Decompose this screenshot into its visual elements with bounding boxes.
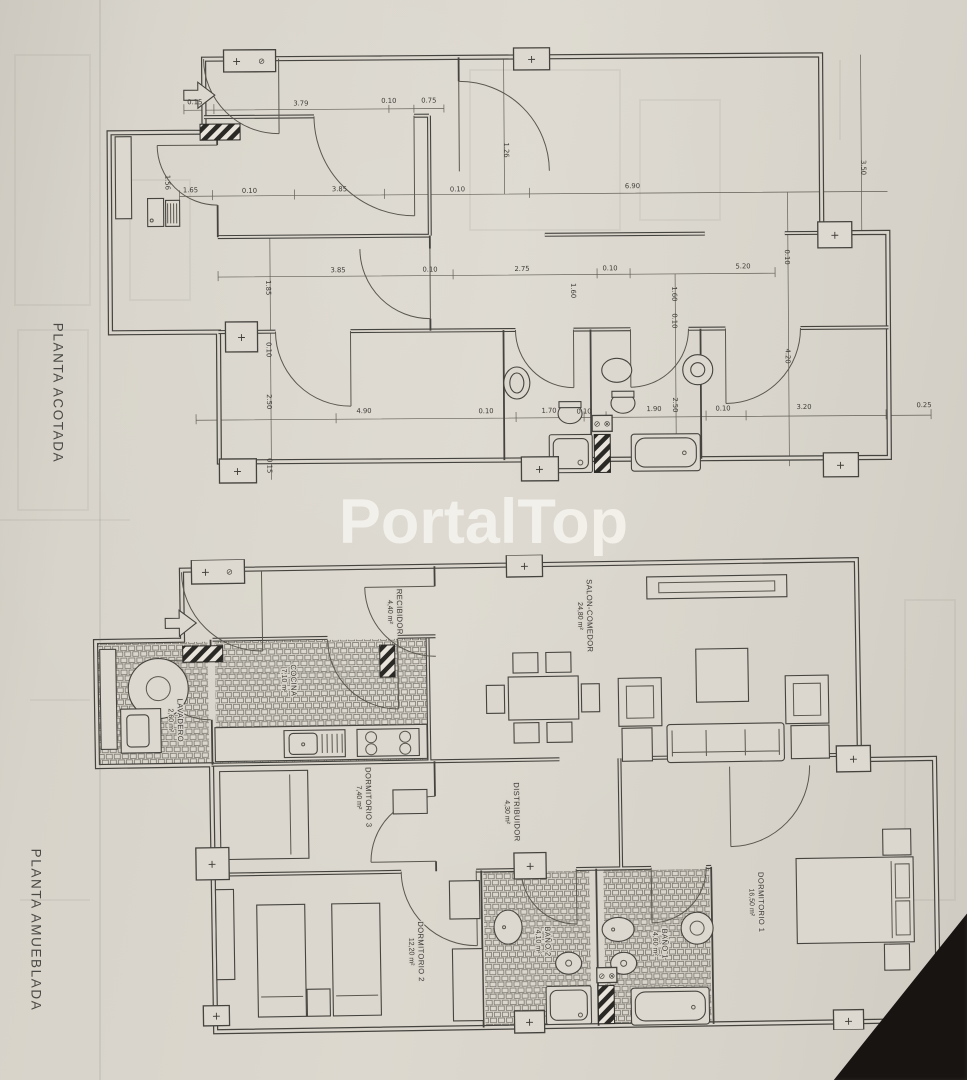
plan-amueblada-drawing: ⊘ ⊗ + ⊘ + + + + + + bbox=[86, 548, 943, 1041]
room-area: 4,60 m² bbox=[651, 932, 658, 957]
dim-label: 0.10 bbox=[478, 407, 493, 415]
dim-label: 0.75 bbox=[421, 97, 436, 105]
plus-marker: + bbox=[535, 463, 544, 476]
kitchen-furniture bbox=[215, 724, 428, 761]
plus-marker: + bbox=[520, 560, 529, 573]
room-name: DORMITORIO 1 bbox=[756, 872, 766, 932]
room-area: 4,10 m² bbox=[534, 930, 541, 955]
dim-label: 4.20 bbox=[784, 349, 792, 364]
room-area: 12,20 m² bbox=[407, 938, 414, 966]
shaft-symbol: ⊗ bbox=[608, 971, 615, 980]
dim-label: 0.25 bbox=[916, 401, 931, 409]
room-area: 16,50 m² bbox=[747, 888, 754, 916]
dim-label: 0.10 bbox=[422, 266, 437, 274]
plan-amueblada: ⊘ ⊗ + ⊘ + + + + + + bbox=[86, 548, 943, 1041]
dim-label: 0.10 bbox=[450, 185, 465, 193]
dim-label: 5.20 bbox=[735, 262, 750, 270]
dim-label: 1.90 bbox=[646, 405, 661, 413]
watermark: PortalTop bbox=[0, 486, 967, 558]
room-name: DORMITORIO 3 bbox=[364, 767, 374, 827]
plus-marker: + bbox=[237, 331, 246, 344]
plan-amueblada-side-label: PLANTA AMUEBLADA bbox=[29, 849, 44, 1012]
room-name: BAÑO 1 bbox=[660, 928, 669, 958]
dim-label: 1.70 bbox=[541, 407, 556, 415]
plus-marker: + bbox=[849, 753, 858, 766]
dim-label: 4.90 bbox=[356, 407, 371, 415]
dimension-labels-vertical: 1.26 1.56 3.50 1.85 0.10 1.60 1.60 0.10 … bbox=[163, 140, 869, 474]
bedroom1-furniture bbox=[796, 829, 915, 972]
plus-marker: + bbox=[844, 1015, 853, 1028]
plan-acotada-side-label: PLANTA ACOTADA bbox=[51, 323, 66, 463]
room-area: 4,40 m² bbox=[386, 600, 393, 625]
dim-label: 0.10 bbox=[576, 407, 591, 415]
room-area: 7,10 m² bbox=[280, 669, 287, 694]
plus-marker: + bbox=[525, 860, 534, 873]
dim-label: 2.50 bbox=[671, 397, 679, 412]
room-area: 24,80 m² bbox=[576, 602, 583, 630]
dim-label: 6.90 bbox=[625, 182, 640, 190]
dim-label: 3.85 bbox=[332, 185, 347, 193]
living-room-furniture bbox=[485, 574, 830, 765]
plus-marker: + bbox=[212, 1010, 221, 1023]
dim-label: 1.60 bbox=[670, 286, 678, 301]
diameter-marker: ⊘ bbox=[226, 567, 233, 576]
dim-label: 1.26 bbox=[502, 142, 510, 157]
paper-crease bbox=[99, 0, 101, 1080]
diameter-marker: ⊘ bbox=[258, 57, 265, 66]
dim-label: 3.79 bbox=[293, 99, 308, 107]
entry-arrow-icon bbox=[165, 610, 196, 636]
plan-acotada: ⊘ ⊗ + ⊘ + + + + + + bbox=[83, 35, 946, 491]
dim-label: 2.50 bbox=[265, 394, 273, 409]
plus-marker: + bbox=[830, 229, 839, 242]
dim-label: 0.15 bbox=[265, 458, 273, 473]
dim-label: 0.10 bbox=[381, 97, 396, 105]
dim-label: 0.10 bbox=[715, 404, 730, 412]
room-area: 7,40 m² bbox=[355, 786, 362, 811]
room-name: LAVADERO bbox=[175, 698, 185, 742]
room-area: 2,60 m² bbox=[167, 708, 174, 733]
dim-label: 0.10 bbox=[602, 264, 617, 272]
dim-label: 3.50 bbox=[859, 160, 867, 175]
plus-marker: + bbox=[232, 55, 241, 68]
room-name: SALON-COMEDOR bbox=[585, 579, 595, 652]
plus-marker: + bbox=[233, 465, 242, 478]
dim-label: 3.20 bbox=[796, 403, 811, 411]
room-name: BAÑO 2 bbox=[543, 926, 552, 956]
room-name: DORMITORIO 2 bbox=[416, 921, 426, 981]
shaft-symbol: ⊘ bbox=[598, 972, 605, 981]
room-area: 4,30 m² bbox=[503, 800, 510, 825]
dim-label: 1.65 bbox=[183, 186, 198, 194]
plus-marker: + bbox=[525, 1016, 534, 1029]
structural-columns bbox=[200, 121, 610, 475]
shaft-symbol: ⊘ bbox=[594, 419, 601, 428]
room-name: RECIBIDOR bbox=[395, 589, 405, 635]
room-name: COCINA bbox=[289, 664, 299, 697]
plus-marker: + bbox=[201, 566, 210, 579]
dim-label: 0.10 bbox=[265, 342, 273, 357]
room-name: DISTRIBUIDOR bbox=[512, 782, 522, 841]
bedroom2-furniture bbox=[215, 881, 483, 1025]
dim-label: 0.10 bbox=[670, 313, 678, 328]
dim-label: 0.10 bbox=[783, 250, 791, 265]
dim-label: 3.85 bbox=[330, 266, 345, 274]
dim-label: 0.10 bbox=[242, 187, 257, 195]
survey-markers: + ⊘ + + + + + + bbox=[217, 46, 859, 483]
door-swings bbox=[157, 55, 801, 407]
bedroom3-furniture bbox=[220, 768, 428, 859]
dim-label: 1.56 bbox=[163, 175, 171, 190]
dim-label: 1.60 bbox=[569, 283, 577, 298]
dim-label: 0.15 bbox=[187, 98, 202, 106]
plus-marker: + bbox=[836, 459, 845, 472]
scanned-floorplan-page: PLANTA ACOTADA PLANTA AMUEBLADA bbox=[0, 0, 967, 1080]
plus-marker: + bbox=[527, 53, 536, 66]
plan-acotada-drawing: ⊘ ⊗ + ⊘ + + + + + + bbox=[83, 35, 946, 491]
dim-label: 2.75 bbox=[514, 265, 529, 273]
plus-marker: + bbox=[207, 858, 216, 871]
dim-label: 1.85 bbox=[264, 280, 272, 295]
shaft-symbol: ⊗ bbox=[604, 419, 611, 428]
